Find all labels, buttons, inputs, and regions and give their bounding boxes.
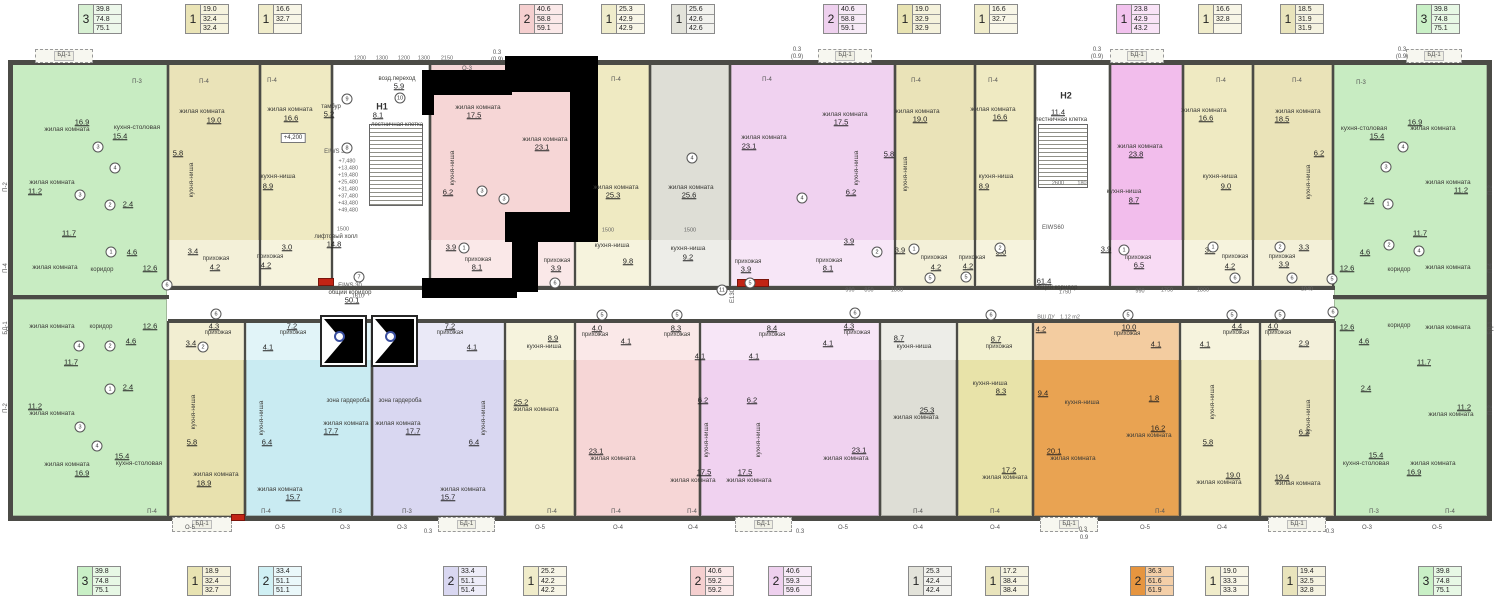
door-number-marker: 7 [354, 272, 365, 283]
badge-area-value: 33.3 [1221, 586, 1248, 595]
plan-label: 11.2 [1457, 403, 1471, 411]
plan-label: 2.4 [123, 200, 133, 208]
door-number-marker: 4 [687, 153, 698, 164]
apartment-badge[interactable]: 233.451.151.1 [258, 566, 302, 596]
badge-area-value: 25.6 [687, 5, 714, 15]
badge-area-value: 32.9 [913, 15, 940, 25]
plan-label: жилая комната [893, 415, 938, 422]
plan-label: О-4 [913, 525, 923, 531]
plan-label: 1500 [337, 227, 349, 233]
apartment-badge[interactable]: 117.238.438.4 [985, 566, 1029, 596]
plan-label: О-4 [688, 525, 698, 531]
plan-label: прихожая [921, 255, 948, 261]
apartment-badge[interactable]: 125.642.642.6 [671, 4, 715, 34]
door-number-marker: 1 [459, 243, 470, 254]
balcony-door: БД-1 [818, 49, 872, 63]
wall-segment [956, 321, 958, 518]
apartment-badge[interactable]: 236.361.661.9 [1130, 566, 1174, 596]
badge-area-value: 75.1 [93, 586, 120, 595]
door-number-marker: 5 [1275, 310, 1286, 321]
badge-room-count: 1 [898, 5, 913, 33]
badge-area-value: 17.2 [1001, 567, 1028, 577]
plan-label: П-2 [3, 403, 9, 413]
plan-label: 8.9 [548, 334, 558, 342]
badge-area-value: 74.8 [93, 577, 120, 587]
door-number-marker: 6 [1287, 273, 1298, 284]
plan-label: О-5 [1432, 525, 1442, 531]
plan-label: лестничная клетка [371, 122, 423, 128]
badge-area-value: 42.2 [539, 586, 566, 595]
badge-room-count: 1 [259, 5, 274, 33]
plan-label: жилая комната [1410, 461, 1455, 468]
badge-area-value: 51.4 [459, 586, 486, 595]
plan-label: (0.9) [1091, 54, 1103, 60]
plan-label: кухня-ниша [854, 151, 861, 186]
badge-area-value: 32.4 [201, 24, 228, 33]
plan-label: 8.1 [373, 111, 383, 119]
badge-area-value: 42.4 [924, 586, 951, 595]
plan-label: коридор [1388, 267, 1411, 273]
plan-label: 4.2 [931, 263, 941, 271]
badge-area-value: 59.6 [784, 586, 811, 595]
badge-area-value: 42.4 [924, 577, 951, 587]
plan-label: кухня-ниша [1065, 400, 1100, 407]
badge-area-values: 19.033.333.3 [1221, 567, 1248, 595]
badge-area-value: 32.4 [201, 15, 228, 25]
plan-label: жилая комната [29, 324, 74, 331]
balcony-door: БД-1 [1040, 517, 1098, 532]
door-number-marker: 2 [995, 243, 1006, 254]
plan-label: 6.4 [469, 438, 479, 446]
plan-label: 18.5 [1275, 115, 1290, 123]
badge-area-values: 33.451.151.1 [274, 567, 301, 595]
plan-label: 23.1 [742, 142, 757, 150]
plan-label: 1800 [891, 288, 903, 294]
badge-area-value: 16.6 [1214, 5, 1241, 15]
badge-room-count: 1 [1281, 5, 1296, 33]
plan-label: 3.0 [282, 243, 292, 251]
door-number-marker: 3 [93, 142, 104, 153]
door-number-marker: 5 [1123, 310, 1134, 321]
plan-label: 14.8 [327, 240, 342, 248]
apartment-b5[interactable] [506, 322, 574, 516]
plan-label: 15.7 [441, 493, 456, 501]
badge-area-values: 19.032.932.9 [913, 5, 940, 33]
apartment-badge[interactable]: 233.451.151.4 [443, 566, 487, 596]
plan-label: 3.9 [1101, 245, 1111, 253]
badge-room-count: 1 [1283, 567, 1298, 595]
apartment-badge[interactable]: 240.659.359.6 [768, 566, 812, 596]
badge-area-value: 74.8 [1432, 15, 1459, 25]
staircase [1038, 124, 1088, 188]
badge-area-value: 51.1 [274, 586, 301, 595]
wall-segment [1332, 62, 1334, 288]
elevator-car-shape [375, 319, 414, 363]
plan-label: жилая комната [726, 478, 771, 485]
apartment-badge[interactable]: 240.658.859.1 [823, 4, 867, 34]
badge-area-value: 39.8 [1432, 5, 1459, 15]
apartment-badge[interactable]: 240.658.859.1 [519, 4, 563, 34]
plan-label: П-2 [1488, 405, 1494, 415]
plan-label: прихожая [257, 254, 284, 260]
plan-label: прихожая [582, 332, 609, 338]
badge-room-count: 2 [691, 567, 706, 595]
plan-label: 12.6 [1340, 323, 1355, 331]
plan-label: 10.0 [1122, 323, 1137, 331]
badge-area-value: 19.0 [1221, 567, 1248, 577]
badge-area-value: 43.2 [1132, 24, 1159, 33]
apartment-badge[interactable]: 240.659.259.2 [690, 566, 734, 596]
redaction-mask [422, 70, 512, 95]
plan-label: 1.8 [1149, 394, 1159, 402]
plan-label: жилая комната [1196, 480, 1241, 487]
badge-room-count: 2 [444, 567, 459, 595]
plan-label: О-5 [535, 525, 545, 531]
plan-label: +13,480 [338, 166, 358, 172]
plan-label: 12.6 [143, 322, 158, 330]
plan-label: 12.6 [1340, 264, 1355, 272]
plan-label: П-4 [147, 509, 157, 515]
staircase [369, 124, 423, 206]
plan-label: П-4 [1155, 509, 1165, 515]
badge-room-count: 1 [186, 5, 201, 33]
plan-label: 1300 [418, 56, 430, 62]
apartment-b9[interactable] [958, 322, 1032, 516]
apartment-badge[interactable]: 118.531.931.9 [1280, 4, 1324, 34]
wall-segment [8, 60, 1492, 65]
balcony-label: БД-1 [1059, 520, 1078, 529]
plan-label: БД-1 [1488, 321, 1494, 334]
badge-area-value: 39.8 [93, 567, 120, 577]
badge-area-value: 36.3 [1146, 567, 1173, 577]
plan-label: П-3 [132, 79, 142, 85]
plan-label: 4.2 [261, 261, 271, 269]
plan-label: (0.9) [791, 54, 803, 60]
wall-segment [8, 60, 13, 521]
badge-area-values: 19.032.432.4 [201, 5, 228, 33]
badge-area-values: 17.238.438.4 [1001, 567, 1028, 595]
plan-label: 1750 [1059, 290, 1071, 296]
plan-label: 2.4 [1361, 384, 1371, 392]
plan-label: П-4 [988, 78, 998, 84]
plan-label: зона гардероба [326, 398, 369, 404]
apartment-badge[interactable]: 339.874.875.1 [78, 4, 122, 34]
plan-label: 15.4 [115, 452, 130, 460]
redaction-mask [422, 278, 517, 298]
wall-segment [167, 321, 169, 518]
balcony-label: БД-1 [754, 520, 773, 529]
plan-label: П-4 [762, 77, 772, 83]
apartment-badge[interactable]: 339.874.875.1 [77, 566, 121, 596]
badge-area-values: 25.342.442.4 [924, 567, 951, 595]
badge-area-values: 40.659.259.2 [706, 567, 733, 595]
plan-label: кухня-ниша [450, 151, 457, 186]
plan-label: О-4 [1217, 525, 1227, 531]
apartment-badge[interactable]: 116.632.7 [974, 4, 1018, 34]
plan-label: кухня-ниша [481, 401, 488, 436]
plan-label: 17.2 [1002, 466, 1017, 474]
door-number-marker: 10 [395, 93, 406, 104]
plan-label: 11.2 [28, 402, 42, 410]
plan-label: 23.8 [1129, 150, 1144, 158]
plan-label: 2600 [1052, 181, 1064, 187]
elevator-car-shape [324, 319, 363, 363]
apartment-badge[interactable]: 123.842.943.2 [1116, 4, 1160, 34]
plan-label: зона гардероба [378, 398, 421, 404]
apartment-badge[interactable]: 125.342.942.9 [601, 4, 645, 34]
door-number-marker: 5 [1227, 310, 1238, 321]
apartment-badge[interactable]: 116.632.8 [1198, 4, 1242, 34]
door-number-marker: 3 [499, 194, 510, 205]
plan-label: жилая комната [982, 475, 1027, 482]
door-number-marker: 6 [1328, 307, 1339, 318]
badge-room-count: 1 [1206, 567, 1221, 595]
plan-label: 8.7 [991, 335, 1001, 343]
plan-label: 8.7 [1129, 196, 1139, 204]
plan-label: жилая комната [513, 407, 558, 414]
plan-label: 4.1 [467, 343, 477, 351]
plan-label: лестничная клетка [1035, 117, 1087, 123]
badge-room-count: 1 [672, 5, 687, 33]
plan-label: П-4 [611, 77, 621, 83]
plan-label: 5.8 [187, 438, 197, 446]
plan-label: 4.2 [210, 263, 220, 271]
balcony-door: БД-1 [35, 49, 93, 63]
plan-label: 0.3 [1079, 527, 1087, 533]
balcony-label: БД-1 [1287, 520, 1306, 529]
plan-label: П-4 [261, 509, 271, 515]
plan-label: коридор [90, 324, 113, 330]
badge-area-value: 16.6 [990, 5, 1017, 15]
redaction-mask [570, 56, 598, 226]
badge-room-count: 2 [520, 5, 535, 33]
plan-label: 5.8 [173, 149, 183, 157]
plan-label: 8.3 [671, 324, 681, 332]
apartment-t12[interactable] [1254, 62, 1332, 286]
wall-segment [1034, 62, 1036, 288]
wall-segment [1334, 321, 1336, 518]
door-number-marker: 2 [105, 200, 116, 211]
apartment-badge[interactable]: 125.342.442.4 [908, 566, 952, 596]
plan-label: 12.6 [143, 264, 158, 272]
plan-label: 8.1 [472, 263, 482, 271]
wall-segment [504, 321, 506, 518]
plan-label: 11.7 [1413, 229, 1427, 237]
door-number-marker: 5 [597, 310, 608, 321]
badge-area-value: 59.3 [784, 577, 811, 587]
apartment-badge[interactable]: 125.242.242.2 [523, 566, 567, 596]
door-number-marker: 1 [1208, 242, 1219, 253]
badge-area-value: 32.9 [913, 24, 940, 33]
badge-area-value: 51.1 [459, 577, 486, 587]
redaction-mask [422, 70, 434, 115]
plan-label: 1040 [1301, 287, 1313, 293]
plan-label: кухня-ниша [979, 174, 1014, 181]
apartment-b11[interactable] [1181, 322, 1259, 516]
plan-label: кухня-ниша [897, 344, 932, 351]
plan-label: кухня-ниша [527, 344, 562, 351]
plan-label: 4.6 [126, 337, 136, 345]
plan-label: 0.3 [1093, 47, 1101, 53]
plan-label: 17.5 [738, 468, 753, 476]
badge-area-value: 75.1 [94, 24, 121, 33]
plan-label: 3.9 [741, 265, 751, 273]
plan-label: прихожая [1114, 331, 1141, 337]
badge-area-values: 25.642.642.6 [687, 5, 714, 33]
wall-segment [1487, 60, 1492, 521]
badge-area-value: 25.3 [924, 567, 951, 577]
plan-label: 4.2 [1036, 325, 1046, 333]
badge-area-value: 31.9 [1296, 24, 1323, 33]
apartment-t7[interactable] [731, 62, 894, 286]
plan-label: 15.7 [286, 493, 301, 501]
badge-area-value: 51.1 [274, 577, 301, 587]
badge-area-value: 59.2 [706, 577, 733, 587]
apartment-badge[interactable]: 119.032.432.4 [185, 4, 229, 34]
badge-area-values: 25.242.242.2 [539, 567, 566, 595]
plan-label: жилая комната [823, 456, 868, 463]
balcony-door: БД-1 [438, 517, 495, 532]
plan-label: E130 [730, 289, 736, 303]
plan-label: П-2 [3, 182, 9, 192]
plan-label: прихожая [1222, 254, 1249, 260]
plan-label: 9.0 [1221, 182, 1231, 190]
door-number-marker: 3 [477, 186, 488, 197]
plan-label: 19.0 [1226, 471, 1241, 479]
door-number-marker: 1 [106, 247, 117, 258]
plan-label: 25.6 [682, 191, 697, 199]
plan-label: 0.3 [1398, 47, 1406, 53]
plan-label: 16.2 [1151, 424, 1166, 432]
apartment-badge[interactable]: 116.632.7 [258, 4, 302, 34]
badge-area-value: 32.8 [1298, 586, 1325, 595]
plan-label: О-4 [990, 525, 1000, 531]
plan-label: 1.12 m2 [1060, 315, 1080, 321]
wall-segment [1259, 321, 1261, 518]
balcony-label: БД-1 [1424, 51, 1443, 60]
plan-label: 16.9 [75, 118, 90, 126]
plan-label: 4.1 [695, 352, 705, 360]
apartment-b7[interactable] [701, 322, 879, 516]
apartment-badge[interactable]: 119.032.932.9 [897, 4, 941, 34]
plan-label: 2.4 [123, 383, 133, 391]
apartment-badge[interactable]: 119.432.532.8 [1282, 566, 1326, 596]
door-number-marker: 2 [1384, 240, 1395, 251]
apartment-badge[interactable]: 339.874.875.1 [1418, 566, 1462, 596]
apartment-badge[interactable]: 119.033.333.3 [1205, 566, 1249, 596]
balcony-label: БД-1 [457, 520, 476, 529]
plan-label: П-3 [402, 509, 412, 515]
badge-area-value: 59.1 [839, 24, 866, 33]
plan-label: П-4 [990, 509, 1000, 515]
badge-area-value: 59.1 [535, 24, 562, 33]
plan-label: 8.1 [823, 264, 833, 272]
badge-area-values: 18.531.931.9 [1296, 5, 1323, 33]
door-number-marker: 4 [110, 163, 121, 174]
plan-label: прихожая [986, 344, 1013, 350]
plan-label: 8.4 [767, 324, 777, 332]
badge-room-count: 1 [602, 5, 617, 33]
plan-label: 8.9 [263, 182, 273, 190]
plan-label: кухня-ниша [1210, 385, 1217, 420]
badge-area-values: 18.932.432.7 [203, 567, 230, 595]
plan-label: 1200 [354, 56, 366, 62]
wall-segment [244, 321, 246, 518]
badge-area-values: 39.874.875.1 [1432, 5, 1459, 33]
plan-label: О-3 [462, 66, 472, 72]
plan-label: 6.5 [1134, 261, 1144, 269]
door-number-marker: 5 [745, 278, 756, 289]
plan-label: 25.3 [920, 406, 935, 414]
badge-area-values: 39.874.875.1 [1434, 567, 1461, 595]
plan-label: +37,480 [338, 194, 358, 200]
badge-area-values: 39.874.875.1 [93, 567, 120, 595]
plan-label: 4.6 [1359, 337, 1369, 345]
plan-label: кухня-ниша [704, 423, 711, 458]
plan-label: 4.1 [263, 343, 273, 351]
badge-area-value: 58.8 [839, 15, 866, 25]
badge-area-value: 61.9 [1146, 586, 1173, 595]
plan-label: 1300 [376, 56, 388, 62]
plan-label: 6.2 [443, 188, 453, 196]
plan-label: П-4 [611, 509, 621, 515]
plan-label: кухня-ниша [259, 401, 266, 436]
plan-label: П-4 [1488, 263, 1494, 273]
plan-label: EIWS60 [1042, 225, 1064, 231]
badge-area-value: 32.8 [1214, 15, 1241, 25]
balcony-label: БД-1 [1127, 51, 1146, 60]
wall-segment [1252, 62, 1254, 288]
apartment-t2[interactable] [169, 62, 259, 286]
wall-segment [167, 62, 169, 288]
badge-area-value: 19.0 [913, 5, 940, 15]
plan-label: БД-1 [3, 321, 9, 334]
plan-label: прихожая [759, 332, 786, 338]
door-number-marker: 8 [342, 143, 353, 154]
plan-label: прихожая [437, 330, 464, 336]
door-number-marker: 4 [797, 193, 808, 204]
balcony-door: БД-1 [1110, 49, 1164, 63]
apartment-badge[interactable]: 118.932.432.7 [187, 566, 231, 596]
plan-label: 25.2 [514, 398, 529, 406]
plan-label: П-4 [913, 509, 923, 515]
badge-area-value: 33.4 [459, 567, 486, 577]
badge-area-value: 16.6 [274, 5, 301, 15]
plan-label: 0.9 [1080, 535, 1088, 541]
plan-label: 11.4 [1051, 108, 1065, 116]
plan-label: О-5 [1140, 525, 1150, 531]
apartment-badge[interactable]: 339.874.875.1 [1416, 4, 1460, 34]
plan-label: 9.2 [683, 253, 693, 261]
plan-label: 4.1 [1200, 340, 1210, 348]
door-number-marker: 1 [105, 384, 116, 395]
plan-label: жилая комната [670, 478, 715, 485]
badge-area-values: 16.632.7 [990, 5, 1017, 33]
plan-label: 4.6 [127, 248, 137, 256]
plan-label: кухня-ниша [903, 157, 910, 192]
badge-area-values: 19.432.532.8 [1298, 567, 1325, 595]
plan-label: 8.7 [894, 334, 904, 342]
badge-area-values: 16.632.8 [1214, 5, 1241, 33]
plan-label: 17.5 [467, 111, 482, 119]
badge-area-value: 31.9 [1296, 15, 1323, 25]
apartment-b10[interactable] [1034, 322, 1179, 516]
door-number-marker: 4 [74, 341, 85, 352]
badge-area-value: 40.6 [839, 5, 866, 15]
plan-label: 4.1 [621, 337, 631, 345]
apartment-b6[interactable] [576, 322, 699, 516]
badge-room-count: 1 [1117, 5, 1132, 33]
